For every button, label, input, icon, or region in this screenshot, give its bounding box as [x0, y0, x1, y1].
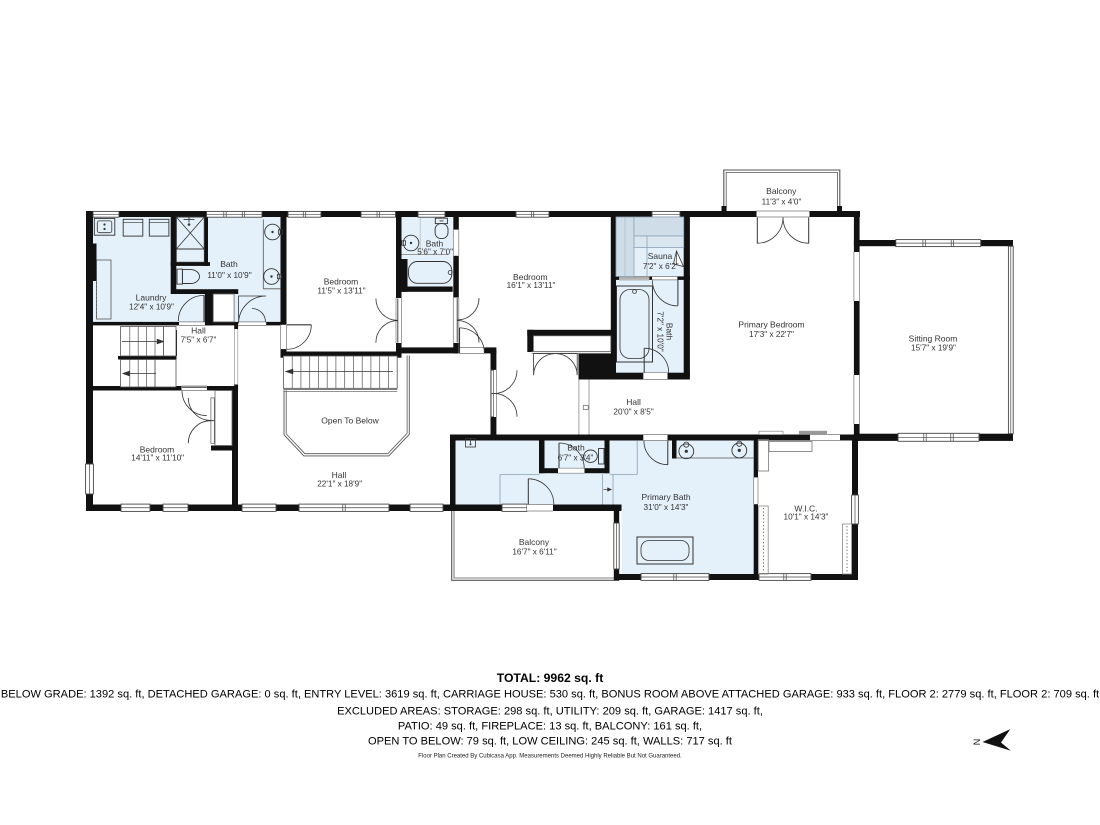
- svg-text:7'2" x 10'0": 7'2" x 10'0": [656, 311, 665, 351]
- svg-text:BELOW GRADE: 1392 sq. ft, DETA: BELOW GRADE: 1392 sq. ft, DETACHED GARAG…: [1, 689, 1099, 701]
- svg-text:10'1" x 14'3": 10'1" x 14'3": [784, 513, 829, 522]
- svg-text:Sauna: Sauna: [648, 251, 673, 261]
- svg-text:Bath: Bath: [220, 259, 238, 269]
- svg-text:OPEN TO BELOW: 79 sq. ft, LOW: OPEN TO BELOW: 79 sq. ft, LOW CEILING: 2…: [368, 736, 732, 748]
- svg-text:7'5" x 6'7": 7'5" x 6'7": [181, 336, 217, 345]
- svg-text:14'11" x 11'10": 14'11" x 11'10": [131, 454, 184, 463]
- svg-text:12'4" x 10'9": 12'4" x 10'9": [129, 303, 174, 312]
- svg-text:Sitting Room: Sitting Room: [909, 334, 958, 344]
- svg-text:Bedroom: Bedroom: [324, 277, 359, 287]
- svg-text:31'0" x 14'3": 31'0" x 14'3": [644, 503, 689, 512]
- svg-text:6'7" x 3'4": 6'7" x 3'4": [558, 453, 594, 462]
- svg-text:EXCLUDED AREAS: STORAGE: 298 s: EXCLUDED AREAS: STORAGE: 298 sq. ft, UTI…: [337, 706, 763, 718]
- svg-text:22'1" x 18'9": 22'1" x 18'9": [317, 479, 362, 488]
- svg-text:20'0" x 8'5": 20'0" x 8'5": [613, 408, 653, 417]
- svg-text:Laundry: Laundry: [136, 293, 167, 303]
- svg-text:Hall: Hall: [191, 326, 206, 336]
- svg-text:11'5" x 13'11": 11'5" x 13'11": [317, 287, 365, 296]
- svg-text:16'7" x 6'11": 16'7" x 6'11": [512, 548, 556, 557]
- svg-text:Balcony: Balcony: [519, 537, 550, 547]
- svg-text:5'6" x 7'0": 5'6" x 7'0": [417, 248, 453, 257]
- svg-text:16'1" x 13'11": 16'1" x 13'11": [507, 281, 556, 290]
- svg-text:Balcony: Balcony: [766, 186, 797, 196]
- svg-text:N: N: [972, 739, 982, 746]
- svg-text:Primary Bath: Primary Bath: [641, 492, 690, 502]
- svg-text:Bath: Bath: [567, 442, 585, 452]
- svg-text:Hall: Hall: [626, 397, 641, 407]
- svg-text:7'2" x 6'2": 7'2" x 6'2": [643, 262, 679, 271]
- svg-text:TOTAL: 9962 sq. ft: TOTAL: 9962 sq. ft: [497, 671, 604, 685]
- svg-text:Primary Bedroom: Primary Bedroom: [738, 319, 804, 329]
- svg-text:11'3" x 4'0": 11'3" x 4'0": [762, 197, 802, 206]
- svg-text:17'3" x 22'7": 17'3" x 22'7": [749, 330, 794, 339]
- svg-text:15'7" x 19'9": 15'7" x 19'9": [911, 344, 956, 353]
- svg-text:11'0" x 10'9": 11'0" x 10'9": [207, 271, 251, 280]
- svg-text:PATIO: 49 sq. ft, FIREPLACE: 1: PATIO: 49 sq. ft, FIREPLACE: 13 sq. ft, …: [398, 721, 702, 733]
- svg-text:Floor Plan Created By Cubicasa: Floor Plan Created By Cubicasa App. Meas…: [418, 754, 682, 760]
- svg-text:Bath: Bath: [665, 323, 675, 341]
- svg-text:Open To Below: Open To Below: [321, 416, 379, 426]
